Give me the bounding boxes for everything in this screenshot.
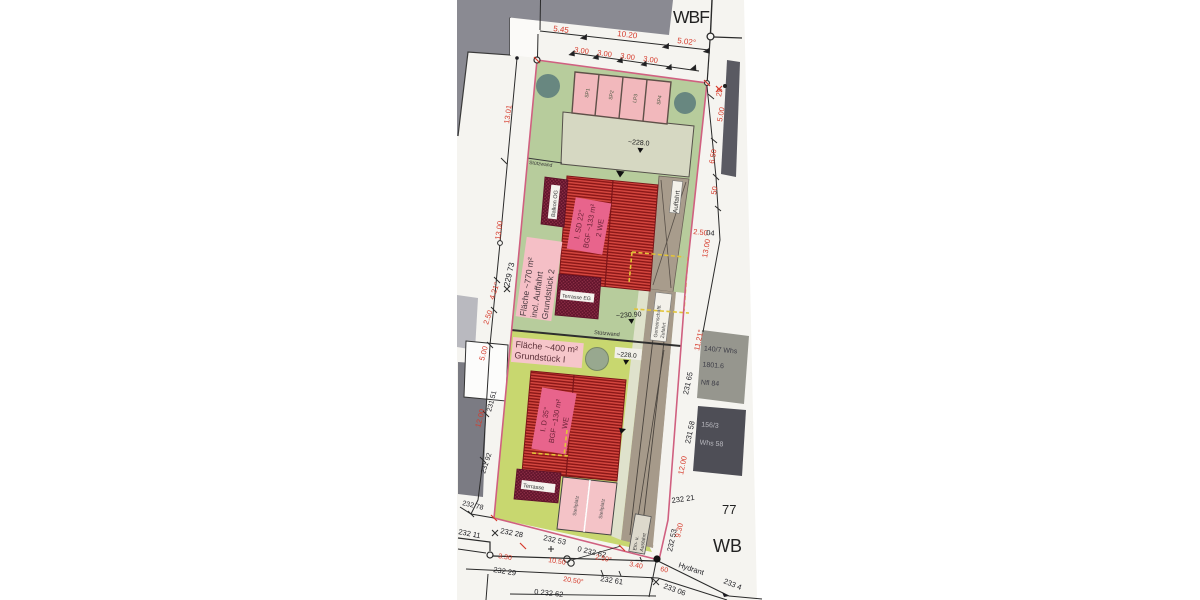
svg-text:04: 04 (706, 228, 715, 238)
svg-text:50: 50 (709, 186, 719, 196)
svg-text:WB: WB (713, 536, 742, 556)
svg-text:WBF: WBF (673, 7, 709, 27)
svg-text:77: 77 (722, 502, 736, 517)
svg-text:60: 60 (660, 566, 669, 574)
